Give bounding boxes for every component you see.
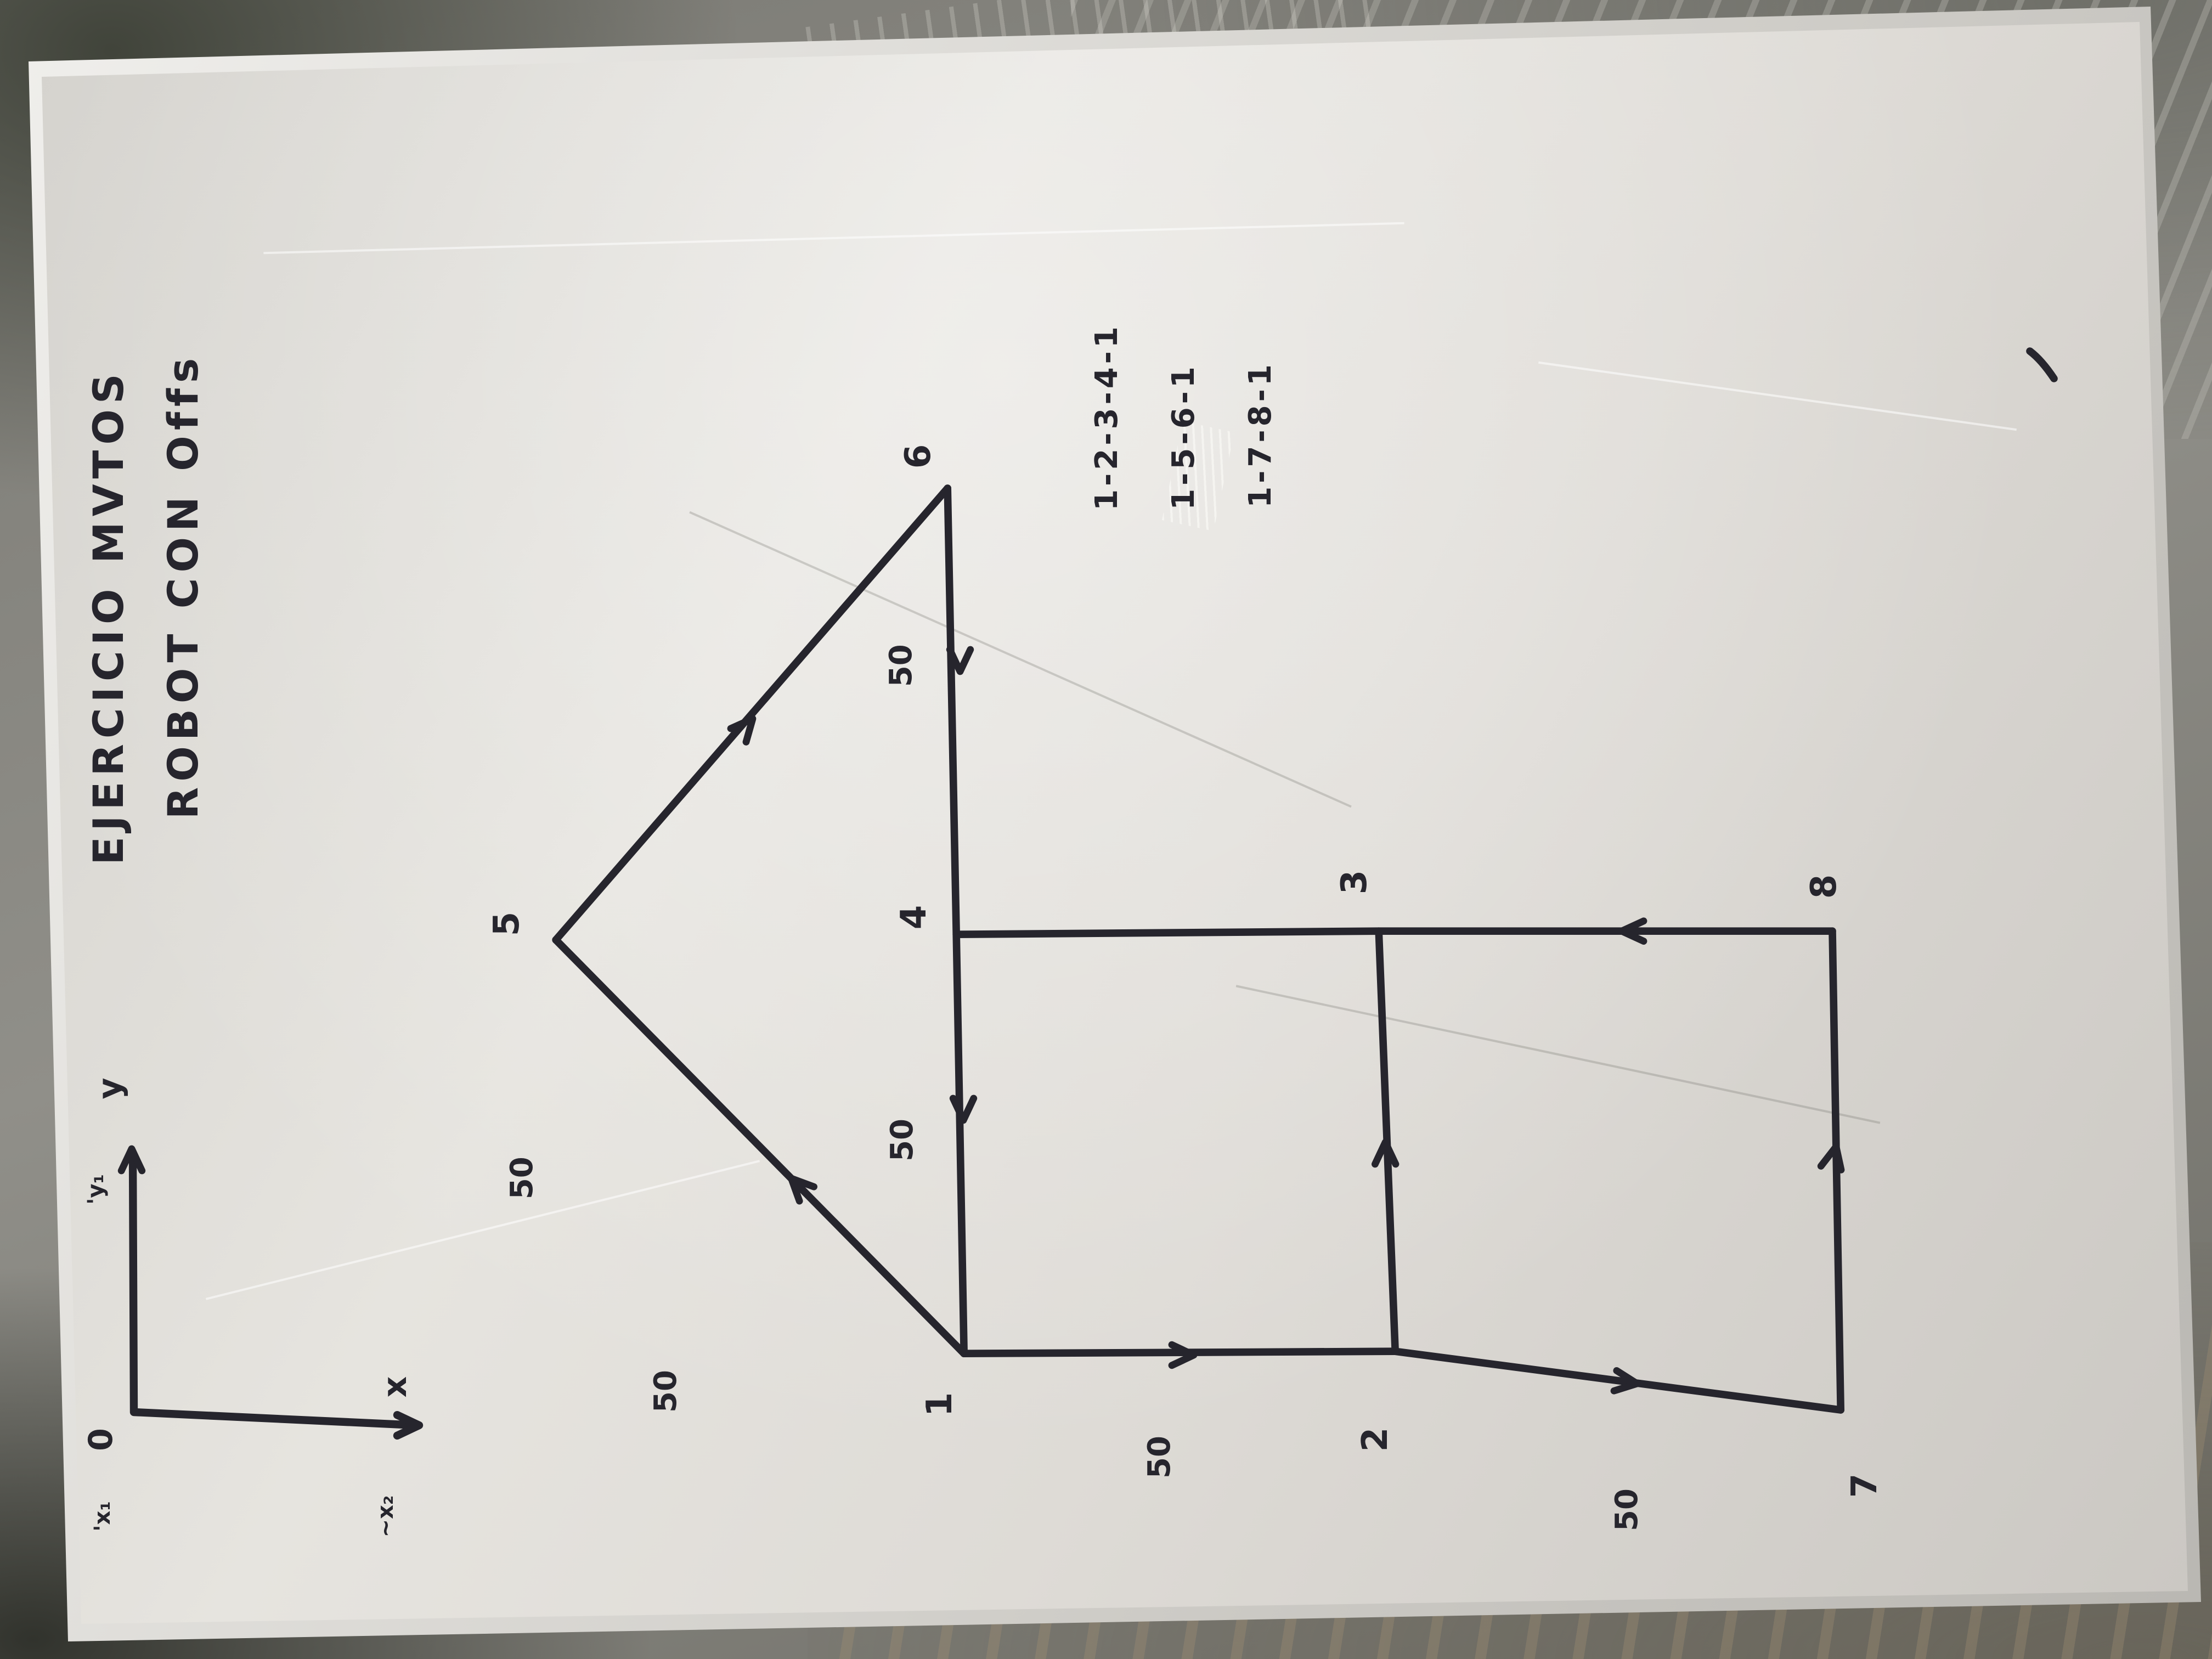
axis-frame xyxy=(133,1154,417,1425)
stray-pen-mark xyxy=(2030,351,2054,379)
segment-4-3-8 xyxy=(956,931,1832,934)
arrowhead-7-to-8-icon xyxy=(1821,1147,1841,1170)
distance-4-1-label: 50 xyxy=(884,1119,920,1161)
distance-1-2-label: 50 xyxy=(1142,1436,1177,1479)
segment-1-2-7 xyxy=(964,1351,1841,1410)
point-2-label: 2 xyxy=(1355,1427,1396,1452)
axis-origin-label: 0 xyxy=(82,1428,120,1451)
sequence-2: 1-5-6-1 xyxy=(1166,363,1201,510)
distance-5-1-upper-label: 50 xyxy=(504,1156,540,1199)
point-7-label: 7 xyxy=(1844,1474,1885,1498)
segment-6-4-1 xyxy=(947,488,964,1353)
point-5-label: 5 xyxy=(487,912,527,936)
point-1-label: 1 xyxy=(919,1392,960,1417)
sequence-1: 1-2-3-4-1 xyxy=(1089,323,1125,511)
photo-of-whiteboard: EJERCICIO MVTOS ROBOT CON Offs 1-2-3-4-1… xyxy=(0,0,2212,1659)
axis-x-label: x xyxy=(376,1376,414,1398)
diagram-drawing: EJERCICIO MVTOS ROBOT CON Offs 1-2-3-4-1… xyxy=(0,0,2212,1659)
axis-y-label: y xyxy=(91,1077,129,1099)
distance-6-4-label: 50 xyxy=(883,644,919,687)
point-6-label: 6 xyxy=(898,444,939,469)
point-3-label: 3 xyxy=(1334,870,1375,895)
point-8-label: 8 xyxy=(1804,874,1844,899)
distance-2-7-label: 50 xyxy=(1609,1488,1645,1531)
title-line-1: EJERCICIO MVTOS xyxy=(84,368,133,865)
point-4-label: 4 xyxy=(894,905,934,930)
axis-y1-label: 'y₁ xyxy=(83,1174,109,1205)
sequence-3: 1-7-8-1 xyxy=(1243,361,1278,508)
segment-6-5 xyxy=(556,488,947,940)
distance-5-1-lower-label: 50 xyxy=(648,1370,684,1413)
axis-x1-label: 'x₁ xyxy=(90,1501,115,1532)
axis-x2-label: ~x₂ xyxy=(373,1496,398,1538)
title-line-2: ROBOT CON Offs xyxy=(159,353,207,819)
